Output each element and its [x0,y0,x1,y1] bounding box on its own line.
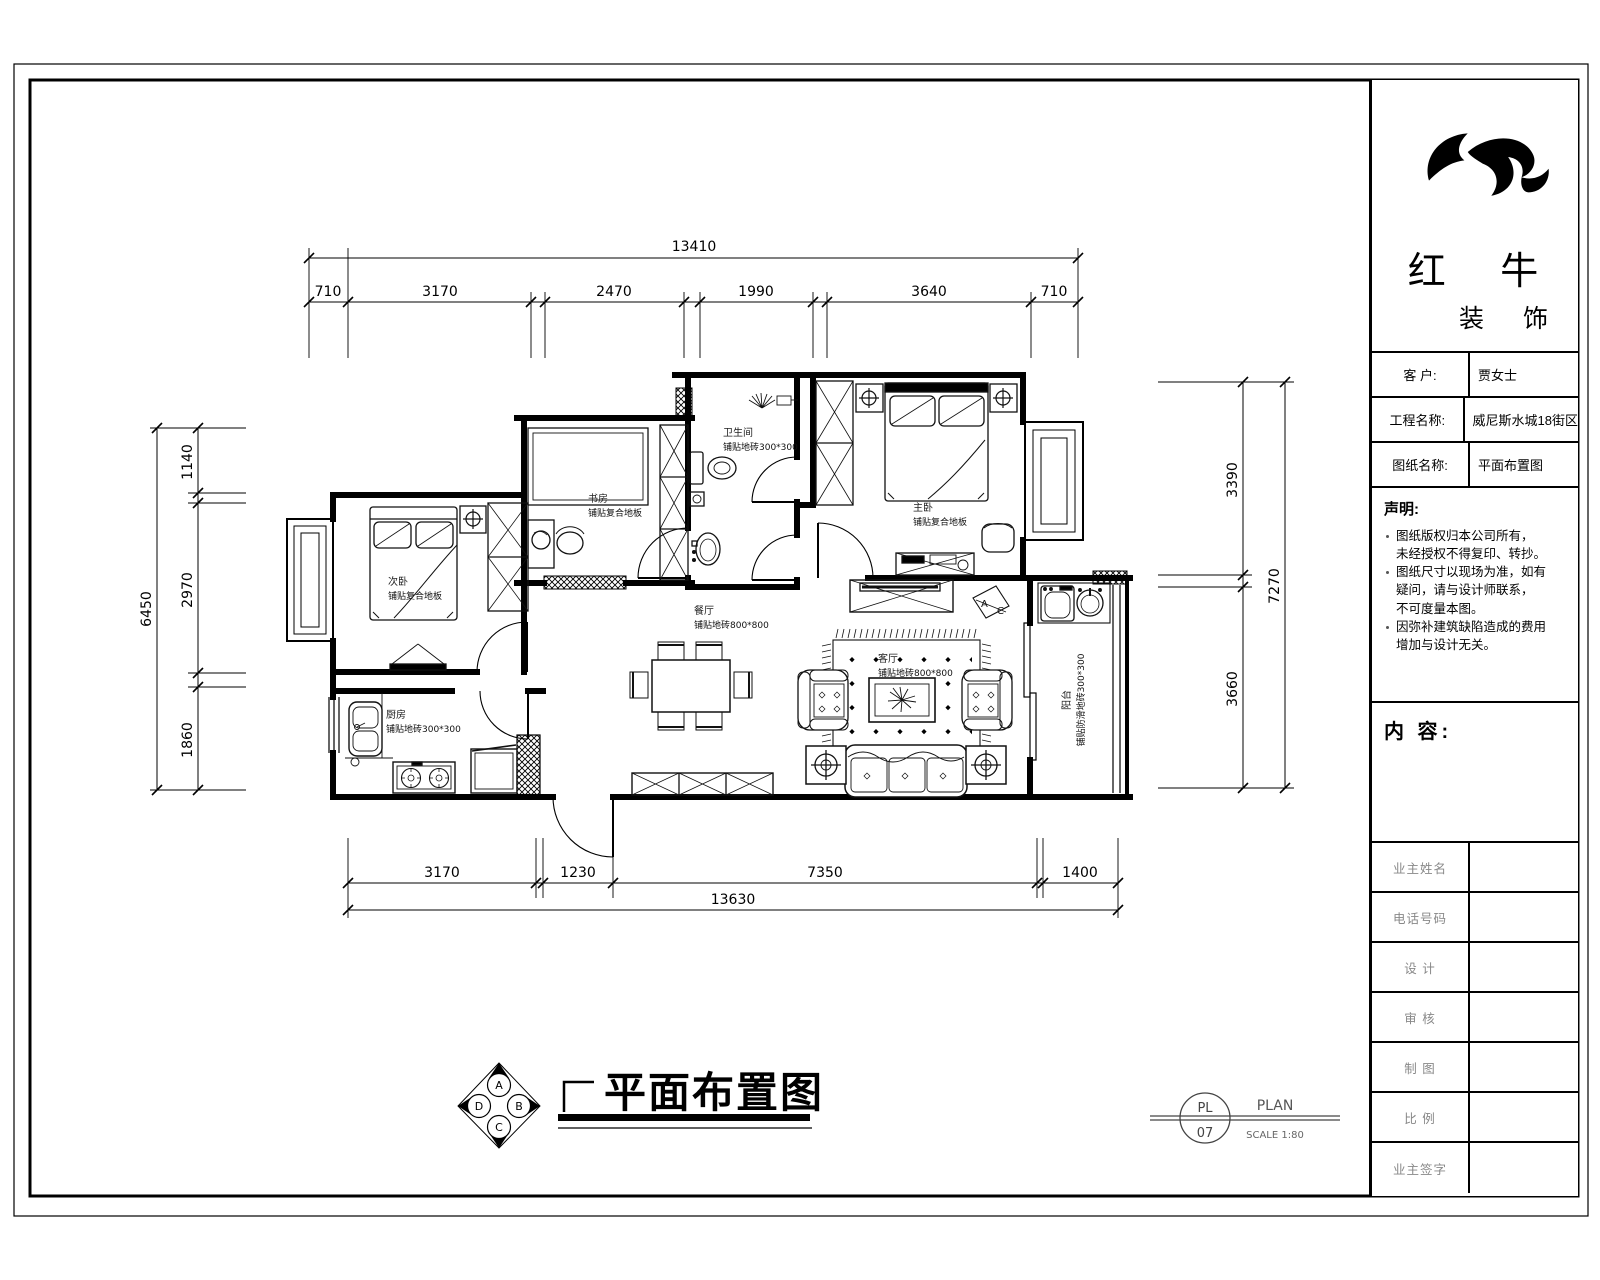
svg-text:铺贴复合地板: 铺贴复合地板 [388,590,442,602]
title-mark [564,1082,594,1112]
scale-label: SCALE 1:80 [1246,1130,1304,1141]
dim-right-total: 7270 [1267,568,1283,604]
drawing-title: 平面布置图 [558,1068,824,1128]
washroom-door [752,535,797,580]
sheet-name-value: 平面布置图 [1470,455,1578,474]
phone-row: 电话号码 [1372,893,1578,943]
shoe-cabinet [632,773,773,795]
kitchen-sink [349,702,382,766]
svg-text:铺贴复合地板: 铺贴复合地板 [588,507,642,519]
svg-text:1400: 1400 [1062,865,1098,881]
bay-window-left [287,519,333,641]
drafter-row: 制 图 [1372,1043,1578,1093]
svg-text:3170: 3170 [422,284,458,300]
compass: A B C D [458,1063,540,1148]
owner-signature-field [1470,1143,1578,1193]
room-label-balcony: 阳台 [1060,690,1073,710]
compass-letter-b: B [515,1100,523,1113]
dining-table [630,642,752,730]
kitchen-pillar [517,735,540,795]
project-value: 威尼斯水城18街区 [1465,410,1578,429]
kitchen-stove [393,762,455,793]
designer-row: 设 计 [1372,943,1578,993]
balcony-basin [1077,588,1103,616]
bay-window-master [1025,422,1083,540]
armchair-left [798,670,848,730]
balcony-top-window [1093,571,1127,584]
dim-bottom-total: 13630 [711,892,756,908]
floor-plan-canvas: 次卧 铺贴复合地板 书房 铺贴复合地板 卫生间 铺贴地砖300*300 主卧 铺… [0,0,1600,1280]
content-label: 内 容: [1384,715,1578,744]
company-name-primary: 红 牛 [1372,240,1578,295]
svg-text:铺贴地砖300*300: 铺贴地砖300*300 [723,441,798,453]
floor-drain [690,492,704,506]
dim-top-total: 13410 [672,239,717,255]
owner-name-field [1470,843,1578,891]
svg-text:3390: 3390 [1225,462,1241,498]
room-label-living: 客厅 [878,652,898,665]
scale-field [1470,1093,1578,1141]
svg-text:1230: 1230 [560,865,596,881]
svg-text:铺贴地砖800*800: 铺贴地砖800*800 [878,667,953,679]
armchair-right [962,670,1012,730]
declaration-title: 声明: [1384,498,1570,519]
svg-text:铺贴复合地板: 铺贴复合地板 [913,516,967,528]
ac-letter-c: C [997,606,1004,617]
balcony-window [1113,585,1120,793]
bedside-lamp-icon [859,388,879,408]
master-bed [885,383,988,501]
company-logo [1397,108,1557,238]
bedroom2-tv [390,644,446,670]
room-label-kitchen: 厨房 [386,708,406,721]
reviewer-row: 审 核 [1372,993,1578,1043]
kitchen-window [329,697,339,753]
plan-word: PLAN [1257,1098,1294,1114]
project-label: 工程名称: [1372,398,1465,441]
compass-letter-a: A [495,1079,503,1092]
duct-column [676,388,692,418]
svg-text:铺贴防滑地砖300*300: 铺贴防滑地砖300*300 [1075,653,1087,746]
client-label: 客 户: [1372,353,1470,396]
study-desk [528,520,584,568]
svg-text:1860: 1860 [180,722,196,758]
svg-text:2470: 2470 [596,284,632,300]
toilet-door [752,457,797,502]
tv-niche [850,580,953,612]
svg-text:铺贴地砖800*800: 铺贴地砖800*800 [694,619,769,631]
title-block: 红 牛 装 饰 客 户: 贾女士 工程名称: 威尼斯水城18街区 图纸名称: 平… [1369,80,1578,1196]
kitchen-door [480,691,528,739]
svg-text:3660: 3660 [1225,671,1241,707]
master-door [818,523,873,578]
sheet-code-top: PL [1197,1101,1213,1116]
sheet-name-row: 图纸名称: 平面布置图 [1372,443,1578,488]
company-name-secondary: 装 饰 [1372,299,1578,335]
coffee-table [869,678,935,722]
ac-letter-a: A [981,599,988,610]
declaration: 声明: 图纸版权归本公司所有， 未经授权不得复印、转抄。 图纸尺寸以现场为准，如… [1372,488,1578,703]
entry-door [553,797,613,857]
sheet-code-bottom: 07 [1197,1126,1214,1141]
sheet-outer-frame [14,64,1588,1216]
room-label-bathroom: 卫生间 [723,426,753,439]
page-title: 平面布置图 [604,1068,824,1117]
master-chair [982,524,1014,552]
plan-number-bubble: PL 07 PLAN SCALE 1:80 [1150,1093,1340,1143]
balcony-sliding-door [1024,623,1036,760]
company-header: 红 牛 装 饰 [1372,80,1578,353]
client-row: 客 户: 贾女士 [1372,353,1578,398]
master-wardrobe [816,381,853,505]
pass-through-sill [544,576,626,589]
study-door [638,528,688,578]
compass-letter-d: D [475,1100,483,1113]
svg-text:3170: 3170 [424,865,460,881]
compass-letter-c: C [495,1121,503,1134]
sofa [845,745,967,797]
bedside-lamp-icon [993,388,1013,408]
svg-text:7350: 7350 [807,865,843,881]
project-row: 工程名称: 威尼斯水城18街区 [1372,398,1578,443]
svg-text:3640: 3640 [911,284,947,300]
bedside-lamp-icon [463,509,483,529]
room-label-dining: 餐厅 [694,604,714,617]
fridge [471,745,517,793]
dim-left-total: 6450 [139,591,155,627]
svg-text:1140: 1140 [180,444,196,480]
sheet-inner-frame [30,80,1578,1196]
room-label-study: 书房 [588,492,608,505]
master-dresser [896,553,974,575]
bedroom2-bed [370,507,457,620]
svg-text:1990: 1990 [738,284,774,300]
svg-text:2970: 2970 [180,572,196,608]
client-value: 贾女士 [1470,365,1578,384]
exhaust-fan-icon [749,393,798,408]
sheet-name-label: 图纸名称: [1372,443,1470,486]
toilet [690,452,736,484]
owner-signature-row: 业主签字 [1372,1143,1578,1193]
content-cell: 内 容: [1372,703,1578,843]
room-label-bedroom2: 次卧 [388,575,408,588]
owner-name-row: 业主姓名 [1372,843,1578,893]
svg-text:710: 710 [315,284,342,300]
room-label-master: 主卧 [913,501,933,514]
svg-text:铺贴地砖300*300: 铺贴地砖300*300 [386,723,461,735]
study-wardrobe [660,425,688,580]
reviewer-field [1470,993,1578,1041]
wash-basin [692,533,720,565]
designer-field [1470,943,1578,991]
svg-text:710: 710 [1041,284,1068,300]
phone-field [1470,893,1578,941]
scale-row: 比 例 [1372,1093,1578,1143]
bedroom2-door [477,622,527,672]
drafter-field [1470,1043,1578,1091]
